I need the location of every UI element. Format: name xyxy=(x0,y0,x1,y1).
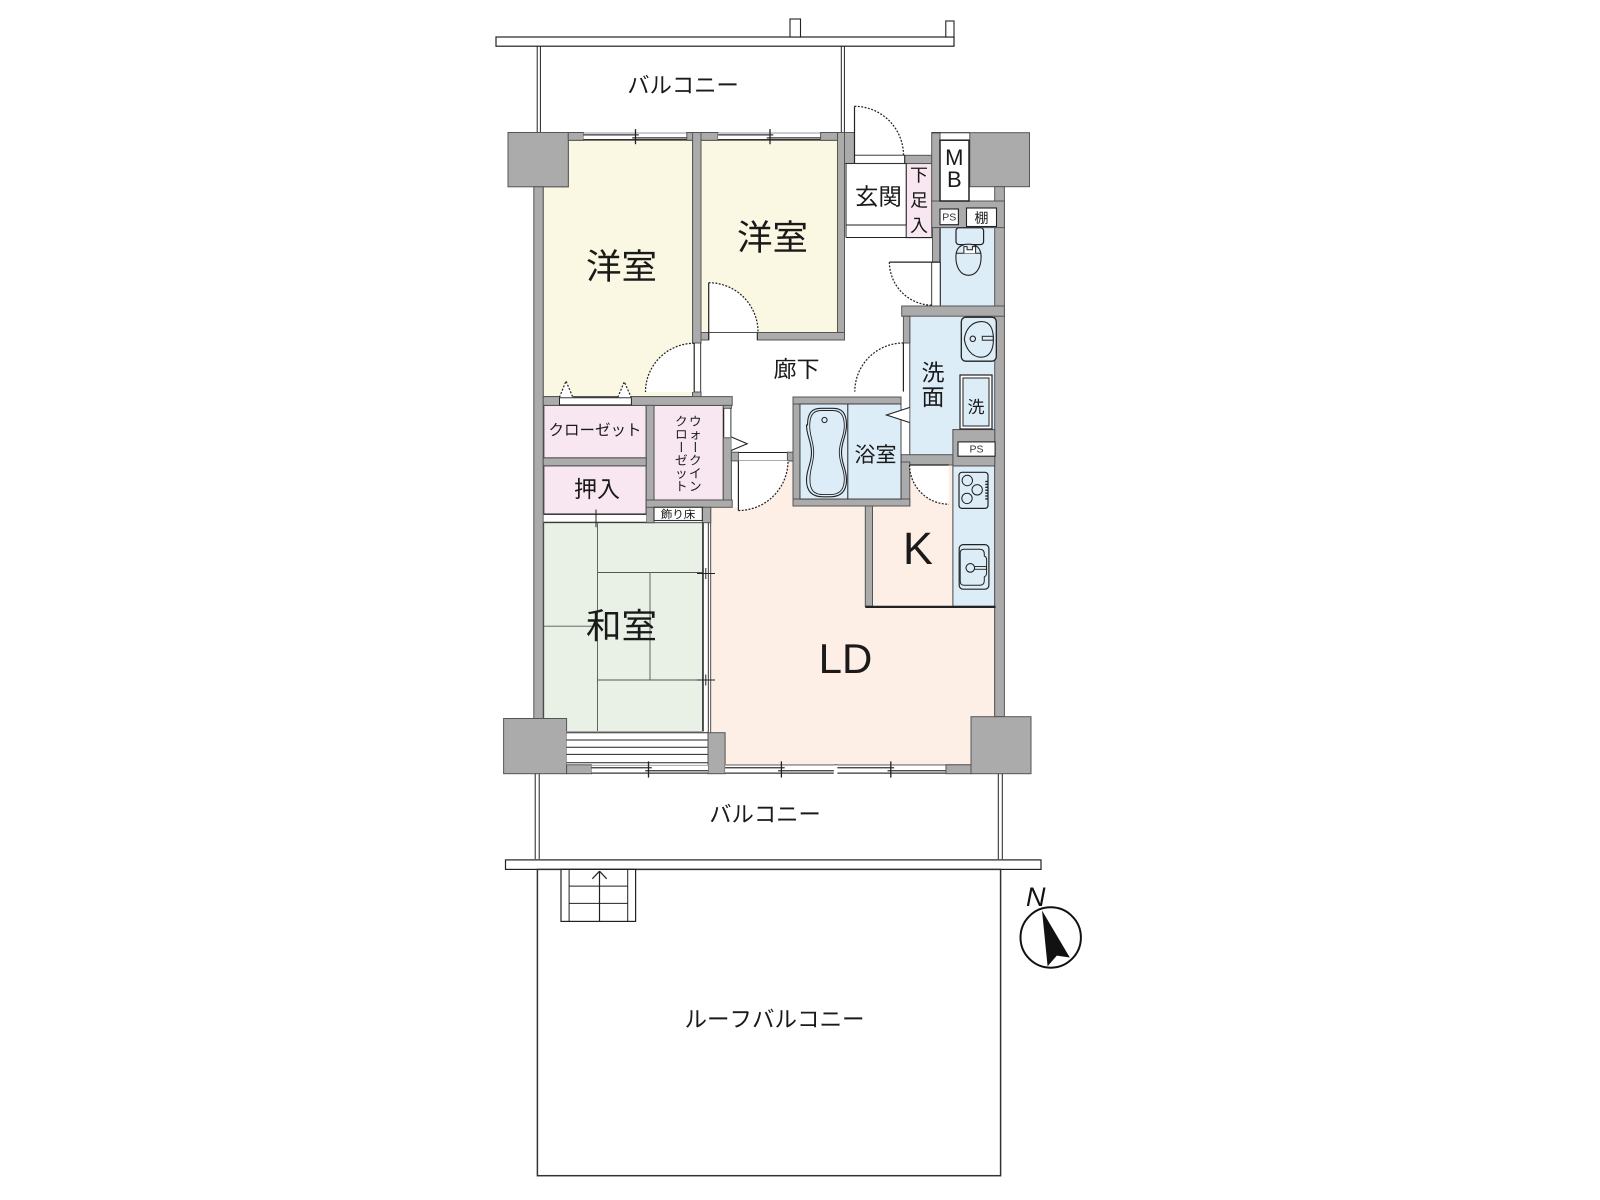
svg-text:K: K xyxy=(903,523,933,574)
svg-text:B: B xyxy=(947,167,962,192)
svg-text:LD: LD xyxy=(819,635,873,682)
svg-text:N: N xyxy=(1026,882,1046,912)
svg-text:PS: PS xyxy=(969,444,983,456)
svg-text:PS: PS xyxy=(942,212,956,224)
